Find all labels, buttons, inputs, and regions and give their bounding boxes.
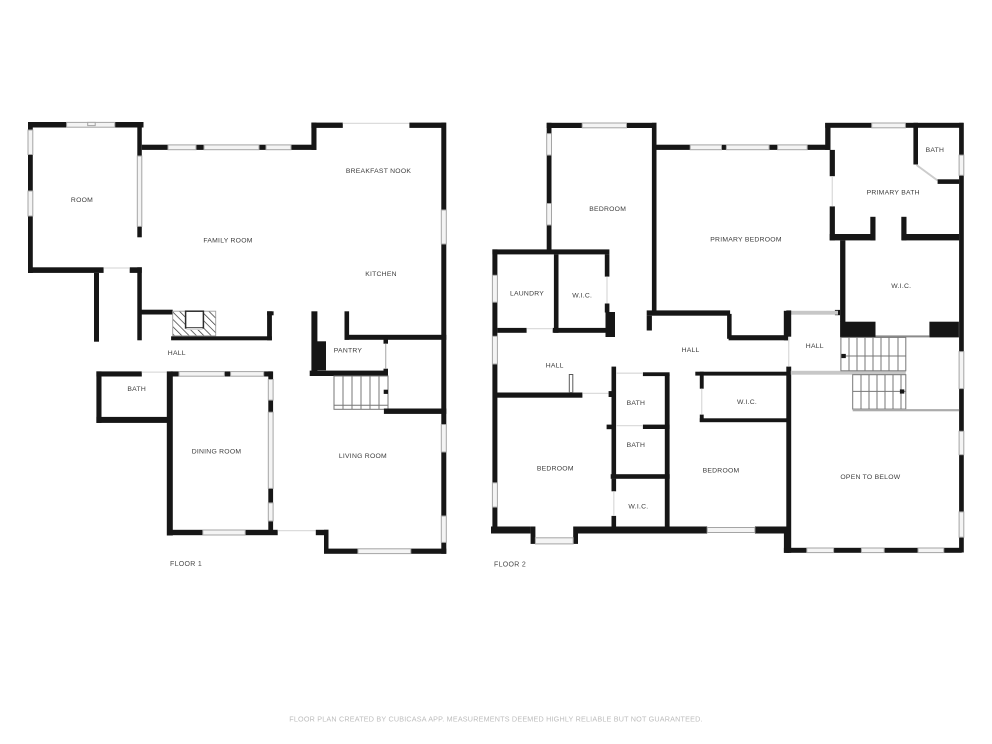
svg-text:W.I.C.: W.I.C. (572, 292, 592, 299)
svg-text:LAUNDRY: LAUNDRY (510, 290, 544, 297)
svg-text:PRIMARY BATH: PRIMARY BATH (867, 190, 920, 197)
svg-text:FLOOR 2: FLOOR 2 (494, 562, 526, 569)
svg-text:FLOOR 1: FLOOR 1 (170, 561, 202, 568)
svg-text:BATH: BATH (627, 400, 646, 407)
svg-text:FLOOR PLAN CREATED BY CUBICASA: FLOOR PLAN CREATED BY CUBICASA APP. MEAS… (289, 715, 702, 724)
svg-text:BATH: BATH (627, 442, 646, 449)
svg-text:KITCHEN: KITCHEN (365, 271, 397, 278)
svg-text:HALL: HALL (168, 350, 186, 357)
svg-text:OPEN TO BELOW: OPEN TO BELOW (840, 474, 900, 481)
svg-text:HALL: HALL (546, 363, 564, 370)
svg-text:ROOM: ROOM (71, 197, 93, 204)
svg-text:BREAKFAST NOOK: BREAKFAST NOOK (346, 168, 412, 175)
svg-text:BEDROOM: BEDROOM (703, 467, 740, 474)
svg-text:BATH: BATH (926, 147, 945, 154)
svg-text:W.I.C.: W.I.C. (737, 399, 757, 406)
svg-text:DINING ROOM: DINING ROOM (192, 448, 242, 455)
svg-text:W.I.C.: W.I.C. (628, 504, 648, 511)
svg-text:FAMILY ROOM: FAMILY ROOM (203, 237, 252, 244)
svg-text:PRIMARY BEDROOM: PRIMARY BEDROOM (710, 236, 782, 243)
svg-text:BEDROOM: BEDROOM (537, 465, 574, 472)
svg-text:HALL: HALL (682, 347, 700, 354)
svg-text:BEDROOM: BEDROOM (589, 206, 626, 213)
svg-text:PANTRY: PANTRY (334, 348, 363, 355)
svg-text:HALL: HALL (806, 343, 824, 350)
svg-text:W.I.C.: W.I.C. (891, 283, 911, 290)
svg-text:LIVING ROOM: LIVING ROOM (339, 453, 387, 460)
svg-text:BATH: BATH (127, 386, 146, 393)
